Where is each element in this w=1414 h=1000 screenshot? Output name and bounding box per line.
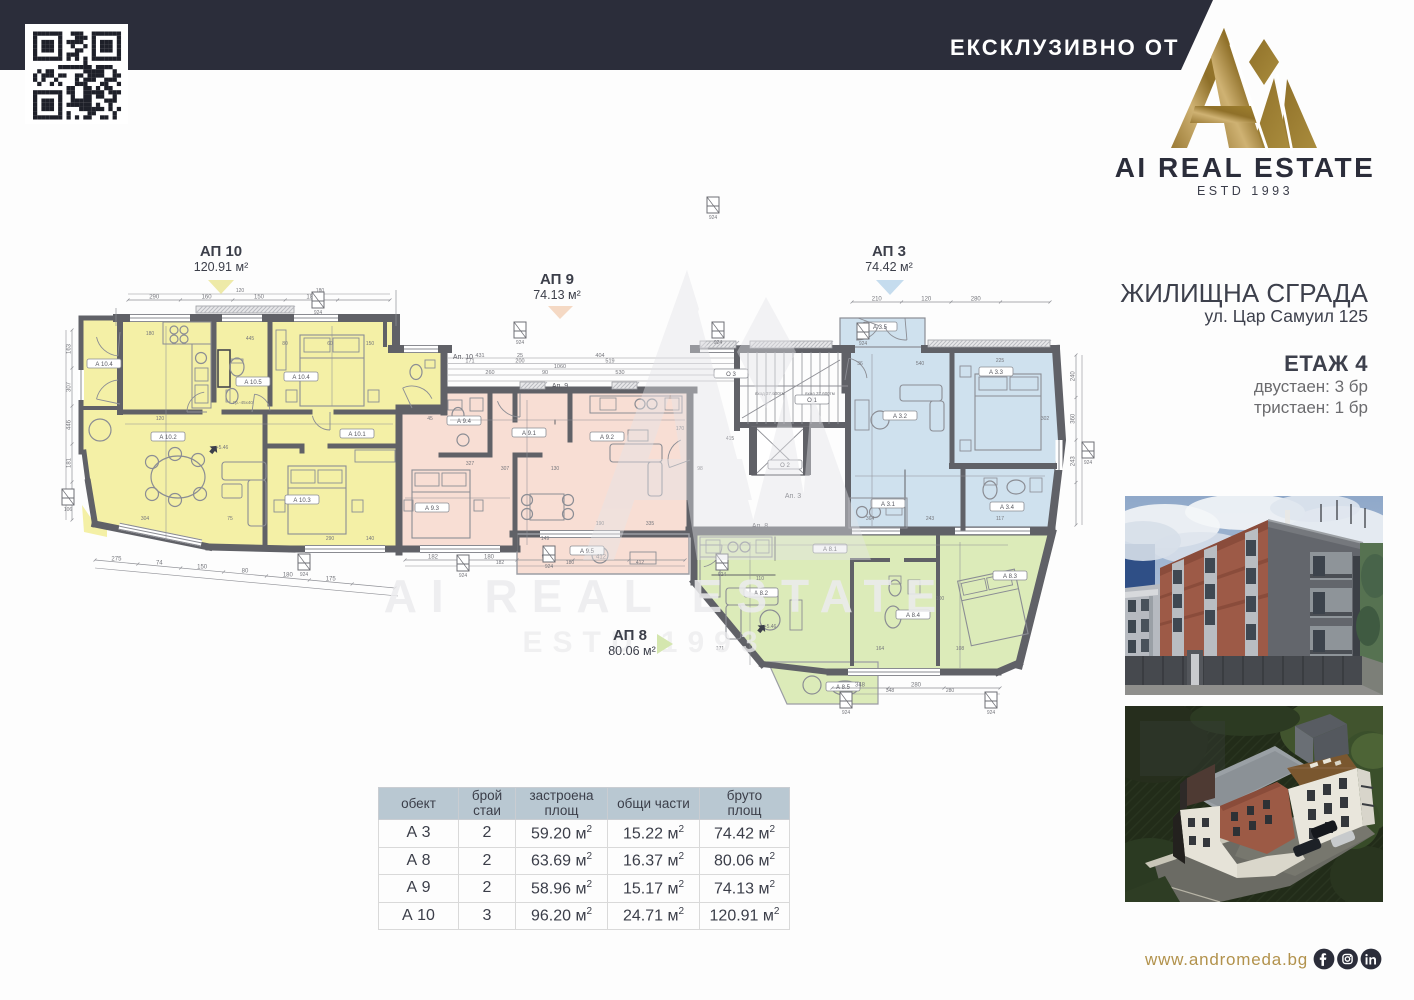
svg-text:+5.46: +5.46 xyxy=(216,445,229,451)
svg-text:182: 182 xyxy=(496,560,505,566)
svg-text:80: 80 xyxy=(242,569,249,575)
svg-text:180: 180 xyxy=(484,555,495,561)
svg-text:Гр.-45х40: Гр.-45х40 xyxy=(233,400,253,405)
svg-text:А 3.4: А 3.4 xyxy=(1000,505,1015,511)
svg-text:307: 307 xyxy=(501,466,510,472)
svg-text:36: 36 xyxy=(857,361,863,367)
svg-text:446: 446 xyxy=(67,419,73,430)
svg-text:90: 90 xyxy=(542,370,548,376)
svg-text:210: 210 xyxy=(872,297,883,303)
svg-text:260: 260 xyxy=(485,370,494,376)
svg-text:150: 150 xyxy=(366,341,375,347)
svg-text:Ап. 9: Ап. 9 xyxy=(552,383,568,390)
svg-text:74.13 м²: 74.13 м² xyxy=(533,288,581,302)
svg-text:924: 924 xyxy=(314,310,323,316)
svg-text:150: 150 xyxy=(197,565,208,571)
svg-text:280: 280 xyxy=(971,297,982,303)
svg-text:302: 302 xyxy=(1041,416,1050,422)
svg-text:335: 335 xyxy=(646,521,655,527)
svg-text:А 3.3: А 3.3 xyxy=(989,370,1004,376)
svg-text:74: 74 xyxy=(156,561,163,567)
svg-text:348: 348 xyxy=(886,688,895,694)
svg-text:243: 243 xyxy=(1071,456,1077,467)
svg-text:А 3.1: А 3.1 xyxy=(881,502,896,508)
svg-text:А 9.2: А 9.2 xyxy=(600,435,615,441)
svg-text:А 10.3: А 10.3 xyxy=(293,498,311,504)
svg-text:181: 181 xyxy=(67,457,73,468)
svg-text:290: 290 xyxy=(326,536,335,542)
svg-text:1060: 1060 xyxy=(554,364,566,370)
svg-text:924: 924 xyxy=(516,340,525,346)
svg-text:120: 120 xyxy=(236,288,245,294)
svg-text:290: 290 xyxy=(149,295,160,301)
svg-text:180: 180 xyxy=(283,573,294,579)
svg-text:445: 445 xyxy=(246,336,255,342)
svg-text:А 10.2: А 10.2 xyxy=(159,435,177,441)
svg-text:225: 225 xyxy=(996,358,1005,364)
svg-text:924: 924 xyxy=(1084,460,1093,466)
svg-text:75: 75 xyxy=(227,516,233,522)
svg-text:А 10.5: А 10.5 xyxy=(244,380,262,386)
svg-text:АП 8: АП 8 xyxy=(613,627,647,644)
svg-text:А 3.2: А 3.2 xyxy=(893,414,908,420)
svg-text:280: 280 xyxy=(946,688,955,694)
svg-text:924: 924 xyxy=(300,572,309,578)
svg-text:117: 117 xyxy=(996,516,1004,522)
svg-text:80.06 м²: 80.06 м² xyxy=(608,644,656,658)
svg-text:164: 164 xyxy=(876,646,885,652)
svg-text:120: 120 xyxy=(156,416,165,422)
svg-text:А 10.4: А 10.4 xyxy=(292,375,310,381)
svg-text:364: 364 xyxy=(866,516,875,522)
svg-text:163: 163 xyxy=(67,343,73,354)
svg-text:924: 924 xyxy=(842,710,851,716)
svg-text:519: 519 xyxy=(605,359,614,365)
svg-text:А 10.1: А 10.1 xyxy=(348,432,366,438)
svg-text:120: 120 xyxy=(921,297,932,303)
svg-text:243: 243 xyxy=(926,516,935,522)
svg-text:327: 327 xyxy=(466,461,475,467)
svg-text:175: 175 xyxy=(326,577,337,583)
svg-text:182: 182 xyxy=(428,555,439,561)
svg-text:431: 431 xyxy=(475,353,484,359)
svg-text:А 9.1: А 9.1 xyxy=(522,431,537,437)
svg-text:171: 171 xyxy=(465,359,474,365)
svg-text:307: 307 xyxy=(67,381,73,392)
svg-text:412: 412 xyxy=(636,560,645,566)
svg-text:275: 275 xyxy=(111,557,122,563)
svg-text:АП 10: АП 10 xyxy=(200,243,242,260)
svg-text:280: 280 xyxy=(911,683,922,689)
svg-text:150: 150 xyxy=(254,295,265,301)
svg-text:А 9.3: А 9.3 xyxy=(425,506,440,512)
svg-text:149: 149 xyxy=(541,536,550,542)
svg-text:120.91 м²: 120.91 м² xyxy=(194,260,248,274)
svg-text:А 8.3: А 8.3 xyxy=(1003,574,1018,580)
svg-text:924: 924 xyxy=(987,710,996,716)
svg-text:А 10.4: А 10.4 xyxy=(95,362,113,368)
svg-text:404: 404 xyxy=(595,353,604,359)
svg-text:AI REAL ESTATE: AI REAL ESTATE xyxy=(384,570,951,622)
svg-text:80: 80 xyxy=(282,341,288,347)
svg-text:304: 304 xyxy=(141,516,150,522)
svg-text:74.42 м²: 74.42 м² xyxy=(865,260,913,274)
svg-text:530: 530 xyxy=(615,370,624,376)
svg-text:200: 200 xyxy=(515,359,524,365)
svg-text:924: 924 xyxy=(709,215,718,221)
svg-text:180: 180 xyxy=(146,331,155,337)
svg-text:106: 106 xyxy=(64,507,73,513)
svg-text:924: 924 xyxy=(859,341,868,347)
svg-text:240: 240 xyxy=(1071,371,1077,382)
svg-text:АП 3: АП 3 xyxy=(872,243,906,260)
svg-text:130: 130 xyxy=(551,466,560,472)
svg-text:360: 360 xyxy=(1071,413,1077,424)
svg-text:140: 140 xyxy=(366,536,375,542)
svg-text:45: 45 xyxy=(427,416,433,422)
svg-text:АП 9: АП 9 xyxy=(540,271,574,288)
svg-text:О 3: О 3 xyxy=(726,372,736,378)
svg-text:160: 160 xyxy=(202,295,213,301)
svg-text:924: 924 xyxy=(714,340,723,346)
svg-text:180: 180 xyxy=(566,560,575,566)
svg-text:348: 348 xyxy=(855,683,866,689)
svg-text:540: 540 xyxy=(916,361,925,367)
